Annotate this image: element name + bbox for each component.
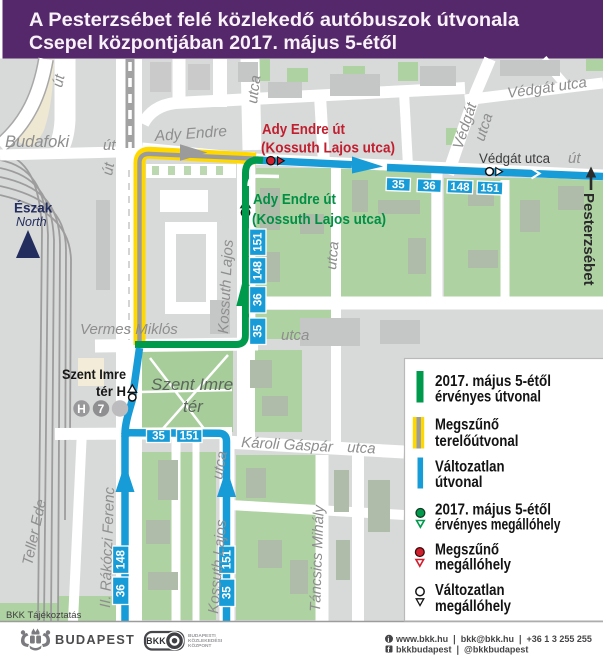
svg-text:i: i bbox=[387, 635, 389, 644]
svg-text:A Pesterzsébet felé közlekedő: A Pesterzsébet felé közlekedő autóbuszok… bbox=[29, 9, 519, 31]
svg-text:148: 148 bbox=[450, 181, 470, 194]
svg-text:36: 36 bbox=[116, 584, 128, 597]
svg-text:tér: tér bbox=[183, 397, 204, 416]
svg-text:36: 36 bbox=[253, 293, 265, 306]
svg-text:út: út bbox=[568, 150, 581, 167]
svg-text:Védgát utca: Védgát utca bbox=[479, 151, 550, 166]
svg-text:bkkbudapest ❘ @bkkbudapest: bkkbudapest ❘ @bkkbudapest bbox=[396, 645, 528, 656]
svg-text:(Kossuth Lajos utca): (Kossuth Lajos utca) bbox=[261, 141, 395, 157]
svg-text:148: 148 bbox=[253, 261, 265, 281]
svg-text:35: 35 bbox=[152, 431, 165, 443]
svg-text:utca: utca bbox=[323, 241, 342, 271]
svg-text:7: 7 bbox=[98, 402, 105, 416]
svg-text:BKK Tájékoztatás: BKK Tájékoztatás bbox=[6, 610, 82, 621]
svg-text:utca: utca bbox=[281, 327, 309, 344]
svg-text:148: 148 bbox=[116, 550, 128, 570]
svg-text:érvényes útvonal: érvényes útvonal bbox=[435, 389, 541, 406]
svg-text:út: út bbox=[103, 137, 116, 154]
svg-text:Vermes Miklós: Vermes Miklós bbox=[80, 321, 178, 338]
svg-text:terelőútvonal: terelőútvonal bbox=[435, 433, 519, 450]
svg-text:151: 151 bbox=[480, 182, 500, 195]
svg-text:utca: utca bbox=[347, 439, 376, 457]
svg-text:www.bkk.hu ❘ bkk@bkk.hu ❘ +36: www.bkk.hu ❘ bkk@bkk.hu ❘ +36 1 3 255 25… bbox=[395, 634, 592, 645]
svg-text:Budafoki: Budafoki bbox=[5, 133, 71, 151]
svg-text:tér H: tér H bbox=[96, 384, 126, 399]
svg-text:Észak: Észak bbox=[14, 201, 53, 216]
svg-text:35: 35 bbox=[392, 179, 406, 192]
svg-text:BKK: BKK bbox=[146, 636, 166, 646]
svg-text:35: 35 bbox=[253, 324, 265, 337]
svg-text:megállóhely: megállóhely bbox=[435, 557, 511, 574]
svg-text:útvonal: útvonal bbox=[435, 474, 483, 491]
svg-text:KÖZPONT: KÖZPONT bbox=[188, 642, 212, 649]
svg-text:érvényes megállóhely: érvényes megállóhely bbox=[435, 517, 561, 534]
svg-text:Pesterzsébet: Pesterzsébet bbox=[580, 193, 597, 286]
svg-text:151: 151 bbox=[253, 232, 265, 252]
svg-text:Szent Imre: Szent Imre bbox=[62, 367, 126, 382]
svg-text:utca: utca bbox=[244, 74, 264, 104]
svg-text:BUDAPEST: BUDAPEST bbox=[55, 632, 135, 647]
svg-text:Változatlan: Változatlan bbox=[435, 459, 505, 476]
svg-text:2017. május 5-étől: 2017. május 5-étől bbox=[435, 373, 551, 390]
svg-text:Változatlan: Változatlan bbox=[435, 582, 505, 599]
svg-text:Ady Endre út: Ady Endre út bbox=[253, 192, 336, 208]
svg-text:Csepel központjában 2017. máju: Csepel központjában 2017. május 5-étől bbox=[29, 32, 397, 54]
svg-text:Szent Imre: Szent Imre bbox=[151, 375, 233, 394]
svg-text:36: 36 bbox=[423, 180, 436, 192]
svg-text:Megszűnő: Megszűnő bbox=[435, 417, 499, 434]
svg-text:H: H bbox=[77, 402, 86, 416]
svg-text:151: 151 bbox=[180, 431, 200, 443]
svg-text:megállóhely: megállóhely bbox=[435, 598, 511, 615]
svg-text:(Kossuth Lajos utca): (Kossuth Lajos utca) bbox=[252, 212, 386, 228]
svg-text:North: North bbox=[16, 215, 47, 229]
svg-text:Ady Endre út: Ady Endre út bbox=[262, 122, 345, 138]
